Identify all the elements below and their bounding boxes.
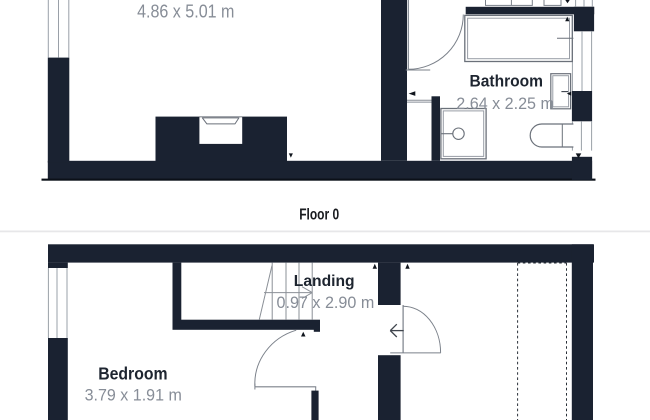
svg-text:0.97 x 2.90 m: 0.97 x 2.90 m <box>277 293 375 312</box>
svg-text:3.79 x 1.91 m: 3.79 x 1.91 m <box>85 385 182 404</box>
svg-text:4.86 x 5.01 m: 4.86 x 5.01 m <box>137 1 234 22</box>
svg-text:Bathroom: Bathroom <box>470 72 544 91</box>
svg-text:Landing: Landing <box>294 273 355 290</box>
svg-text:2.64 x 2.25 m: 2.64 x 2.25 m <box>456 94 554 113</box>
svg-text:Bedroom: Bedroom <box>98 363 167 383</box>
svg-text:Floor 0: Floor 0 <box>299 207 339 224</box>
